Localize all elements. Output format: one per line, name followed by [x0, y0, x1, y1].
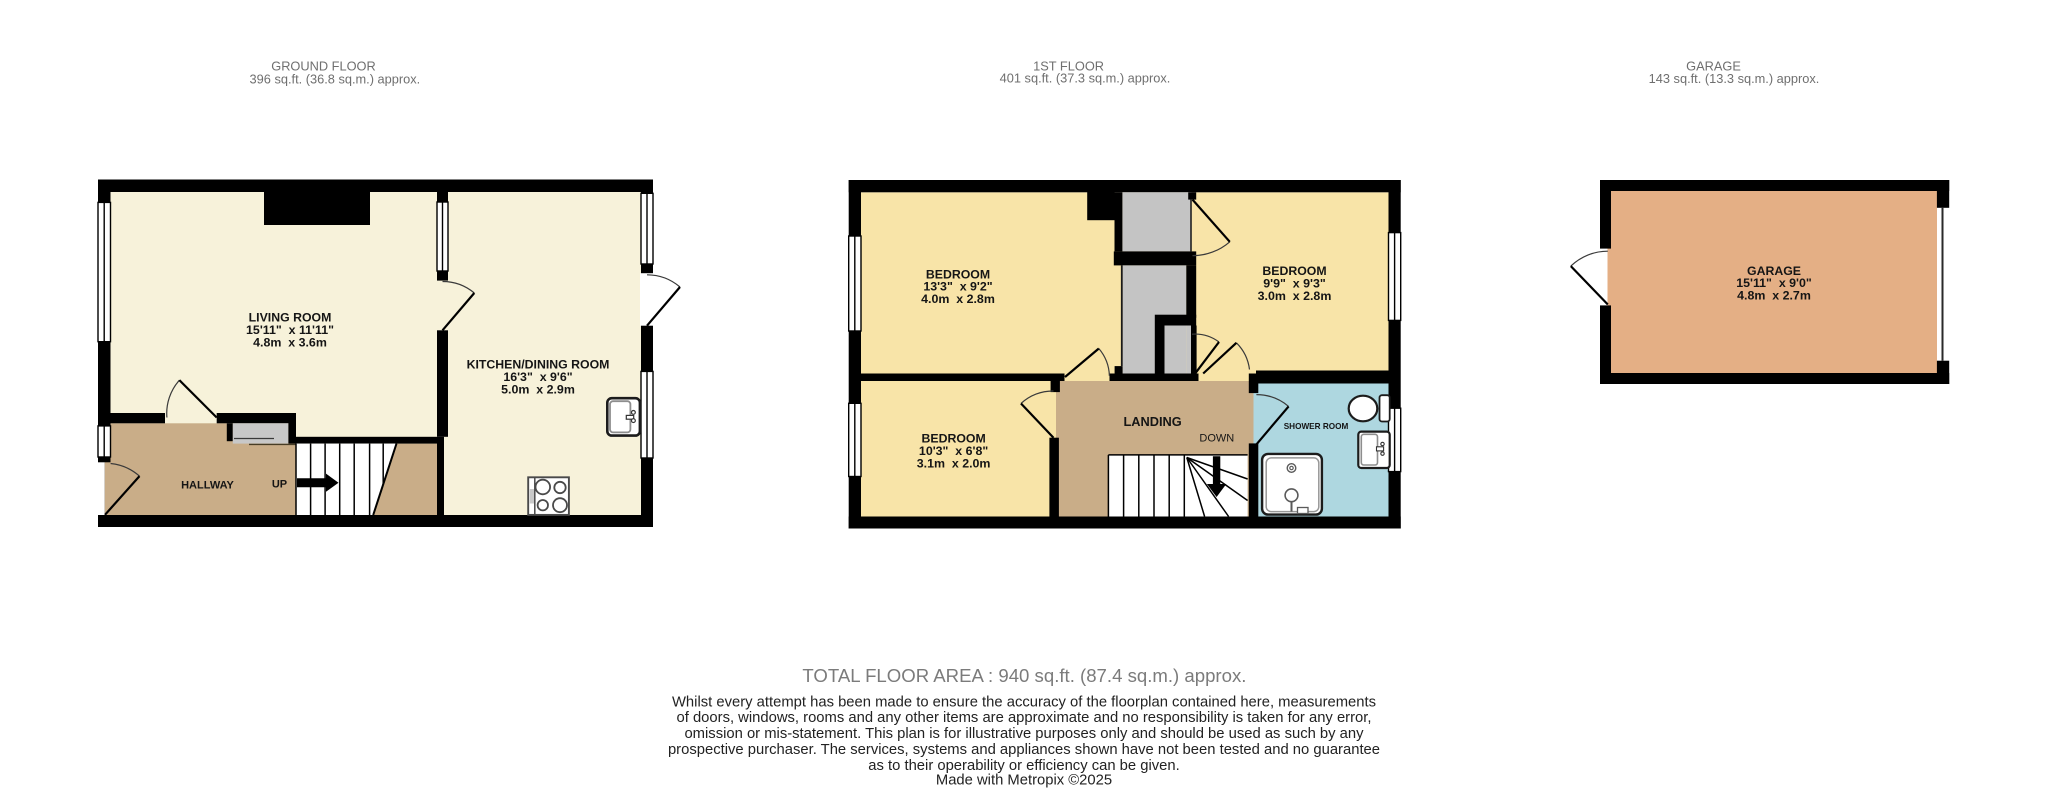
svg-text:SHOWER ROOM: SHOWER ROOM: [1284, 422, 1349, 431]
svg-text:3.1m x 2.0m: 3.1m x 2.0m: [917, 456, 991, 470]
svg-text:as to their operability or eff: as to their operability or efficiency ca…: [868, 758, 1179, 774]
svg-text:UP: UP: [272, 478, 287, 490]
svg-text:143 sq.ft. (13.3 sq.m.) approx: 143 sq.ft. (13.3 sq.m.) approx.: [1649, 71, 1820, 86]
svg-text:Whilst every attempt has been: Whilst every attempt has been made to en…: [672, 694, 1376, 710]
svg-text:401 sq.ft. (37.3 sq.m.) approx: 401 sq.ft. (37.3 sq.m.) approx.: [1000, 71, 1171, 86]
svg-text:3.0m x 2.8m: 3.0m x 2.8m: [1258, 289, 1332, 303]
svg-text:LANDING: LANDING: [1123, 414, 1181, 429]
svg-text:4.8m x 3.6m: 4.8m x 3.6m: [253, 336, 327, 350]
svg-text:TOTAL FLOOR AREA : 940 sq.ft.: TOTAL FLOOR AREA : 940 sq.ft. (87.4 sq.m…: [802, 665, 1246, 686]
svg-text:omission or mis-statement. Thi: omission or mis-statement. This plan is …: [684, 726, 1364, 742]
svg-text:396 sq.ft. (36.8 sq.m.) approx: 396 sq.ft. (36.8 sq.m.) approx.: [250, 72, 421, 87]
svg-text:prospective purchaser. The ser: prospective purchaser. The services, sys…: [668, 742, 1380, 758]
svg-text:Made with Metropix ©2025: Made with Metropix ©2025: [936, 773, 1112, 789]
svg-text:of doors, windows, rooms and a: of doors, windows, rooms and any other i…: [677, 710, 1372, 726]
svg-text:4.8m x 2.7m: 4.8m x 2.7m: [1737, 288, 1811, 302]
svg-text:DOWN: DOWN: [1199, 433, 1234, 445]
svg-text:5.0m x 2.9m: 5.0m x 2.9m: [501, 383, 575, 397]
svg-text:HALLWAY: HALLWAY: [181, 480, 234, 492]
svg-text:4.0m x 2.8m: 4.0m x 2.8m: [921, 292, 995, 306]
